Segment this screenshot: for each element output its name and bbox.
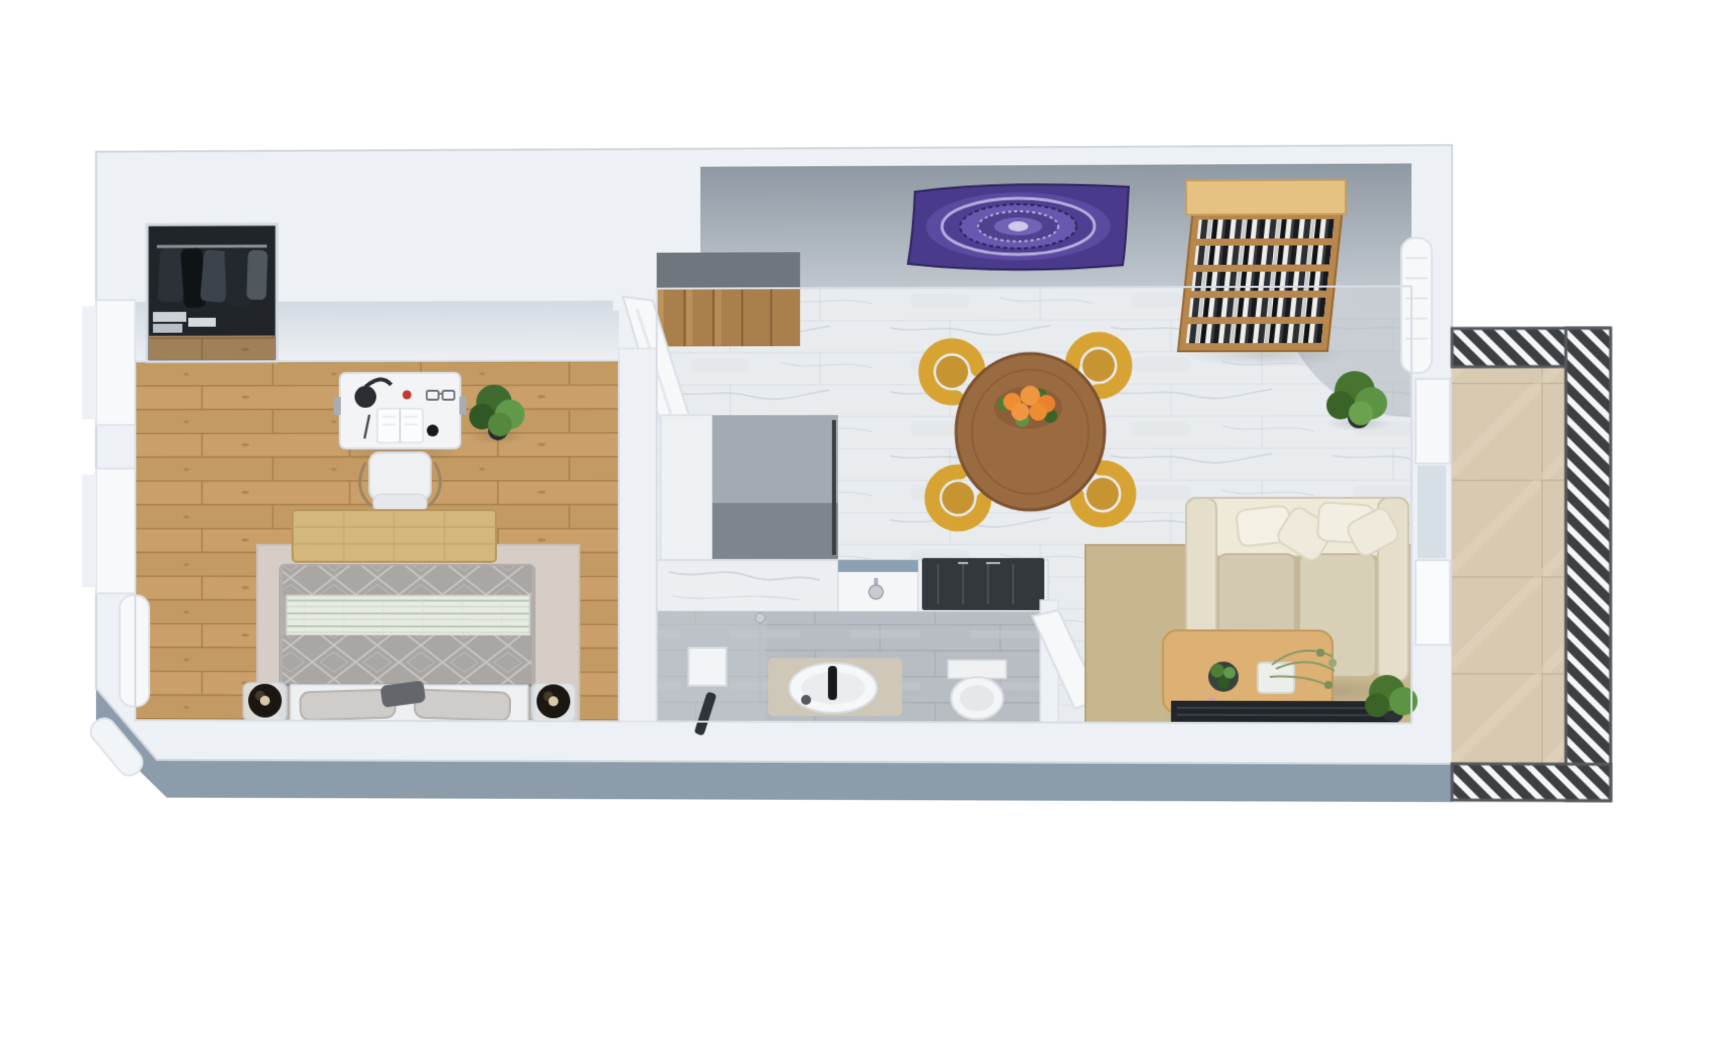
divider-wall [619,348,657,721]
railing-right [1566,328,1611,801]
bookshelf-top [1186,180,1346,215]
shower-head [755,613,765,623]
refrigerator [712,415,838,560]
hanging-clothes [157,247,267,308]
basin-drain [801,695,811,705]
floorplan-3d-wrapper [10,0,1715,1054]
bedside-lamp-right [532,683,576,721]
quilt-upper [283,566,532,596]
mandala-tapestry [908,184,1129,270]
bed-pillow [414,689,510,720]
lamp-ring [548,696,558,706]
ink-pot [427,425,439,437]
balcony-floor [1452,367,1566,783]
wardrobe-with-clothes [147,224,277,361]
floorplan-svg [10,0,1715,1054]
quilt-lower [283,635,532,685]
tall-cabinet [661,415,713,560]
open-book [377,409,422,443]
red-button [403,390,412,399]
kitchen-sink [838,560,918,612]
shower-control [688,648,726,686]
orange [1011,403,1029,421]
tv-bench [1171,701,1395,724]
bookshelf [1178,180,1349,368]
balcony-glass [1418,466,1446,559]
window-sill [82,475,96,588]
faucet [869,585,883,599]
staircase [657,252,800,346]
balcony-door-panel [1416,560,1450,645]
fridge-slot [832,420,836,555]
floorplan-canvas [0,0,1715,1054]
kitchen-counter [657,558,1049,612]
stair-treads [657,288,800,346]
foot-bench [293,510,496,562]
window [96,469,135,594]
toilet-tank [948,660,1006,678]
balcony-door-panel [1416,379,1450,464]
bathroom [657,600,1101,737]
stair-ceiling-shadow [657,252,800,290]
lamp-ring [260,696,270,706]
cooktop [922,558,1044,610]
basin-faucet [828,666,837,700]
toilet [948,660,1006,719]
wardrobe-floor [149,335,275,359]
railing-bottom [1452,764,1611,801]
white-planter-box [1258,663,1294,693]
coffee-table-top [1163,630,1333,713]
bedside-lamp-left [243,683,286,721]
living-wall-radiator [1401,238,1431,373]
orange [1020,386,1040,406]
striped-blanket [287,595,530,635]
window [96,300,135,425]
dining-table-top [956,353,1105,510]
desk [334,373,466,463]
vanity-basin [768,658,902,716]
orange [1029,403,1047,421]
chair-seat [369,452,430,500]
window-sill [82,306,96,419]
